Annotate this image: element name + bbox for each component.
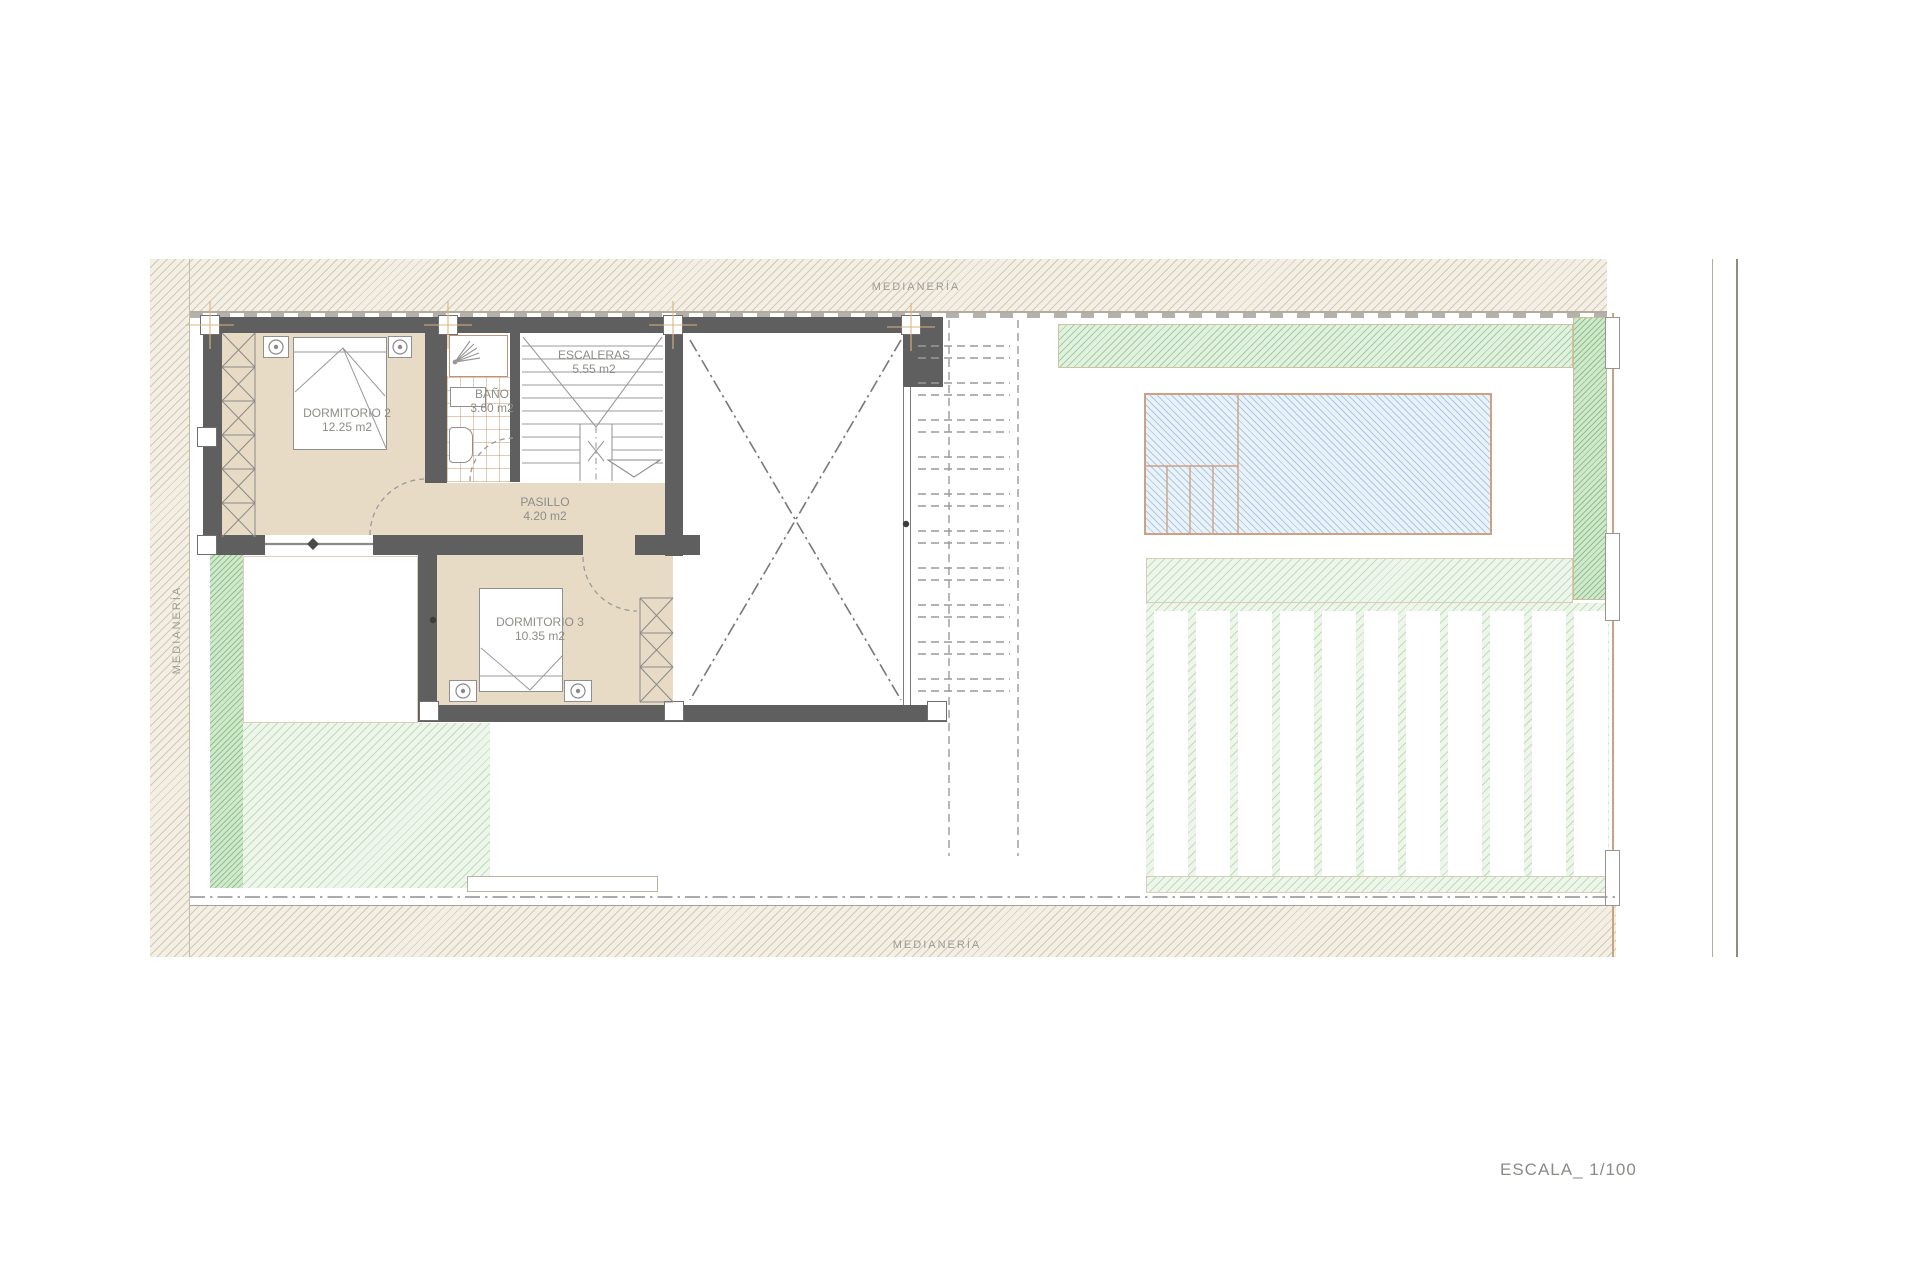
room-label-dormitorio-3: DORMITORIO 3 10.35 m2 (465, 616, 615, 643)
room-name: DORMITORIO 3 (465, 616, 615, 630)
entrance-step (467, 876, 658, 892)
wall-top (203, 317, 903, 333)
nightstand (564, 680, 592, 702)
deck-band-top (1146, 558, 1573, 603)
nightstand (449, 680, 477, 702)
room-area: 12.25 m2 (272, 421, 422, 435)
toilet (449, 427, 473, 463)
room-label-dormitorio-2: DORMITORIO 2 12.25 m2 (272, 407, 422, 434)
pillar (664, 701, 684, 721)
pillar (197, 427, 217, 447)
garden-lawn-lower-left (243, 723, 490, 888)
swimming-pool (1144, 393, 1492, 535)
wall-stairs-right (665, 333, 683, 556)
pillar (419, 701, 439, 721)
room-label-pasillo: PASILLO 4.20 m2 (495, 496, 595, 523)
pillar (200, 315, 220, 335)
window-diamond-marker (307, 538, 319, 550)
garden-strip-right (1573, 317, 1607, 600)
pillar (927, 701, 947, 721)
wall-dorm2-bano (425, 333, 447, 483)
nightstand (388, 336, 412, 358)
wall-mid-horizontal-b (635, 535, 700, 555)
floor-door-gap-dorm3 (583, 535, 635, 555)
shower-tray (449, 335, 508, 377)
room-area: 4.20 m2 (495, 510, 595, 524)
room-name: ESCALERAS (544, 349, 644, 363)
room-name: PASILLO (495, 496, 595, 510)
pillar (663, 315, 683, 335)
nightstand (263, 336, 289, 358)
right-wall-segment-1 (1605, 317, 1620, 369)
room-area: 3.60 m2 (452, 402, 532, 416)
pillar (901, 315, 921, 335)
scale-note: ESCALA_ 1/100 (1500, 1160, 1740, 1180)
party-wall-label-top: MEDIANERÍA (836, 281, 996, 293)
room-label-bano: BAÑO 3.60 m2 (452, 388, 532, 415)
terrace-lower-left (243, 556, 418, 723)
party-wall-band-left (150, 259, 190, 957)
right-wall-segment-3 (1605, 850, 1620, 906)
pergola-dashed-lines (918, 320, 1018, 856)
room-name: BAÑO (452, 388, 532, 402)
wall-dorm3-left (418, 555, 437, 705)
void-cross-lines (690, 340, 901, 700)
deck-slats (1146, 603, 1609, 876)
garden-strip-top-right (1058, 324, 1573, 368)
room-area: 5.55 m2 (544, 363, 644, 377)
room-area: 10.35 m2 (465, 630, 615, 644)
room-name: DORMITORIO 2 (272, 407, 422, 421)
deck-band-bottom (1146, 876, 1609, 893)
pillar (197, 535, 217, 555)
right-wall-segment-2 (1605, 533, 1620, 621)
party-wall-label-bottom: MEDIANERÍA (857, 939, 1017, 951)
room-label-escaleras: ESCALERAS 5.55 m2 (544, 349, 644, 376)
neighbor-boundary-line-1 (1712, 259, 1713, 957)
party-wall-label-left: MEDIANERÍA (171, 550, 183, 710)
wall-mid-horizontal-a (373, 535, 583, 555)
deck-slat-cap (1146, 603, 1609, 611)
pillar (438, 315, 458, 335)
garden-strip-left (210, 553, 243, 888)
neighbor-boundary-line-2 (1736, 259, 1738, 957)
floor-plan-page: DORMITORIO 2 12.25 m2 BAÑO 3.60 m2 ESCAL… (0, 0, 1920, 1280)
wall-void-right-thin (903, 387, 911, 705)
